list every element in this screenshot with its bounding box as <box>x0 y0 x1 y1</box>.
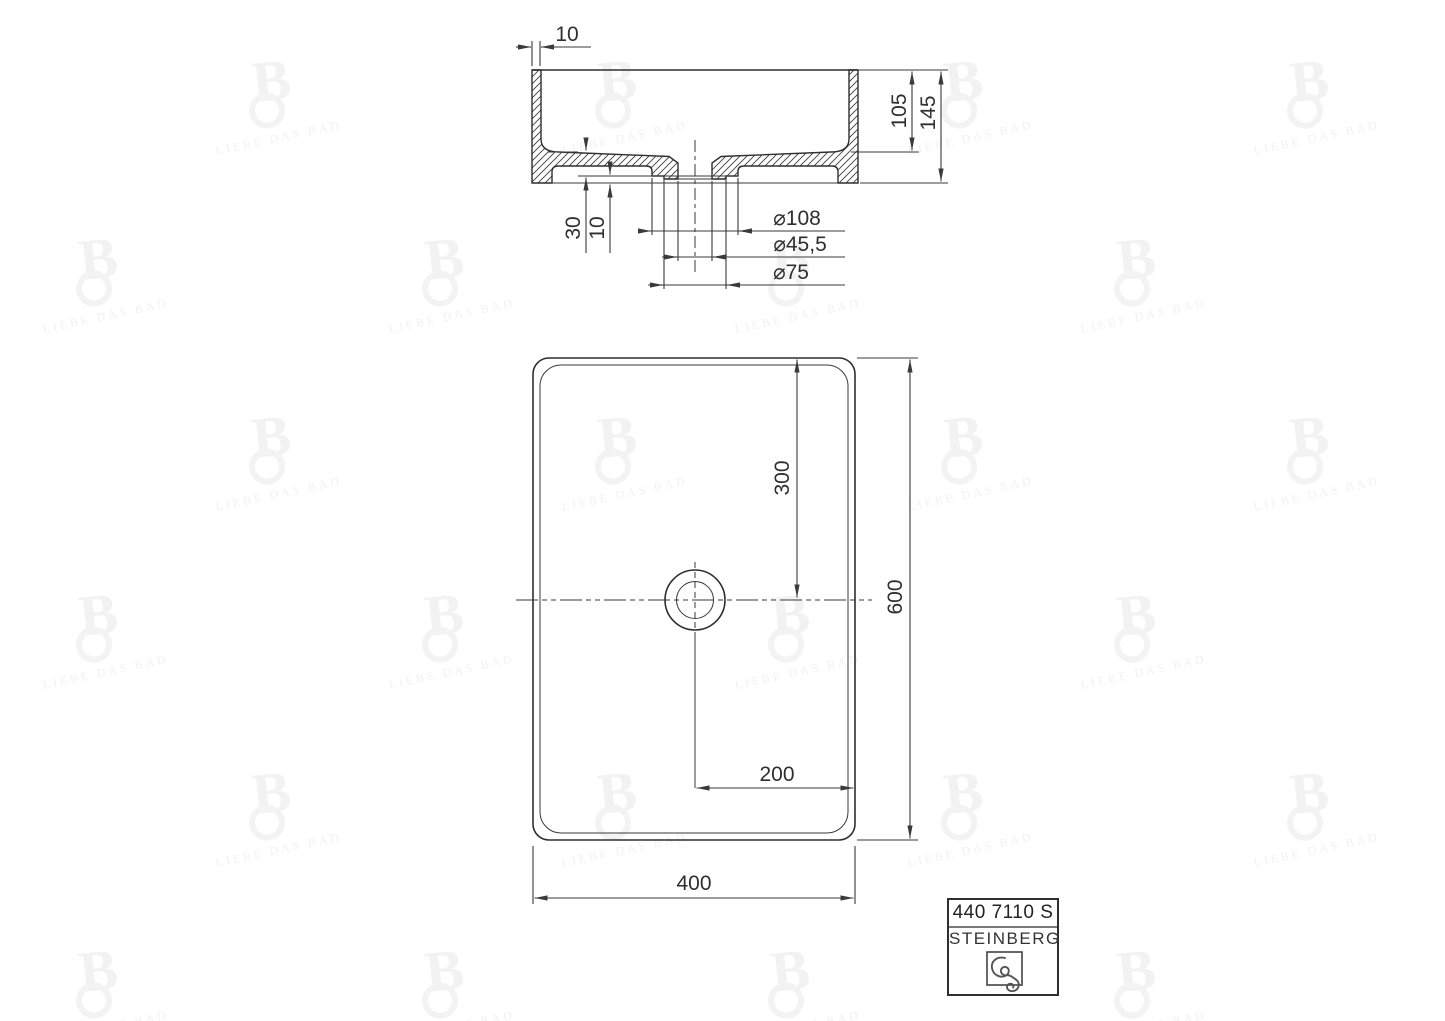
brand-name: STEINBERG <box>949 929 1057 949</box>
dim-label-wall-thickness: 10 <box>555 23 578 46</box>
dim-label-drain-from-top: 300 <box>771 460 794 495</box>
technical-drawing-page: BLIEBE DAS BADBLIEBE DAS BADBLIEBE DAS B… <box>0 0 1445 1021</box>
basin-technical-drawing: 10 105 145 30 <box>0 0 1445 1021</box>
dim-overall-width: 400 <box>533 846 855 904</box>
dim-wall-thickness: 10 <box>516 23 591 66</box>
dim-label-floor-to-recess: 30 <box>562 216 585 239</box>
dim-drain-from-top: 300 <box>771 360 797 598</box>
dim-label-basin-depth: 105 <box>888 93 911 128</box>
dim-label-recess-to-bottom: 10 <box>586 216 609 239</box>
title-block: 440 7110 S STEINBERG <box>947 898 1059 996</box>
section-right-wall <box>712 70 858 183</box>
plan-inner-rim <box>540 365 848 833</box>
plan-outer-edge <box>533 358 855 840</box>
dim-drain-from-right: 200 <box>697 763 854 788</box>
dim-recess-diameter: ⌀108 <box>638 178 845 235</box>
section-left-wall <box>532 70 678 183</box>
steinberg-logo-icon <box>975 950 1031 1000</box>
dim-label-drain-from-right: 200 <box>759 763 794 786</box>
dim-label-boss-diameter: ⌀75 <box>773 261 809 284</box>
article-number: 440 7110 S <box>949 900 1057 928</box>
dim-label-recess-diameter: ⌀108 <box>773 207 821 230</box>
dim-overall-length: 600 <box>857 358 918 840</box>
section-view: 10 105 145 30 <box>516 23 948 289</box>
dim-label-overall-length: 600 <box>884 579 907 614</box>
dim-label-drain-hole-diameter: ⌀45,5 <box>773 233 827 256</box>
dim-label-overall-width: 400 <box>676 872 711 895</box>
dim-recess-to-bottom: 10 <box>586 164 610 253</box>
dim-label-overall-height: 145 <box>917 95 940 130</box>
plan-view: 300 600 200 400 <box>516 358 918 904</box>
